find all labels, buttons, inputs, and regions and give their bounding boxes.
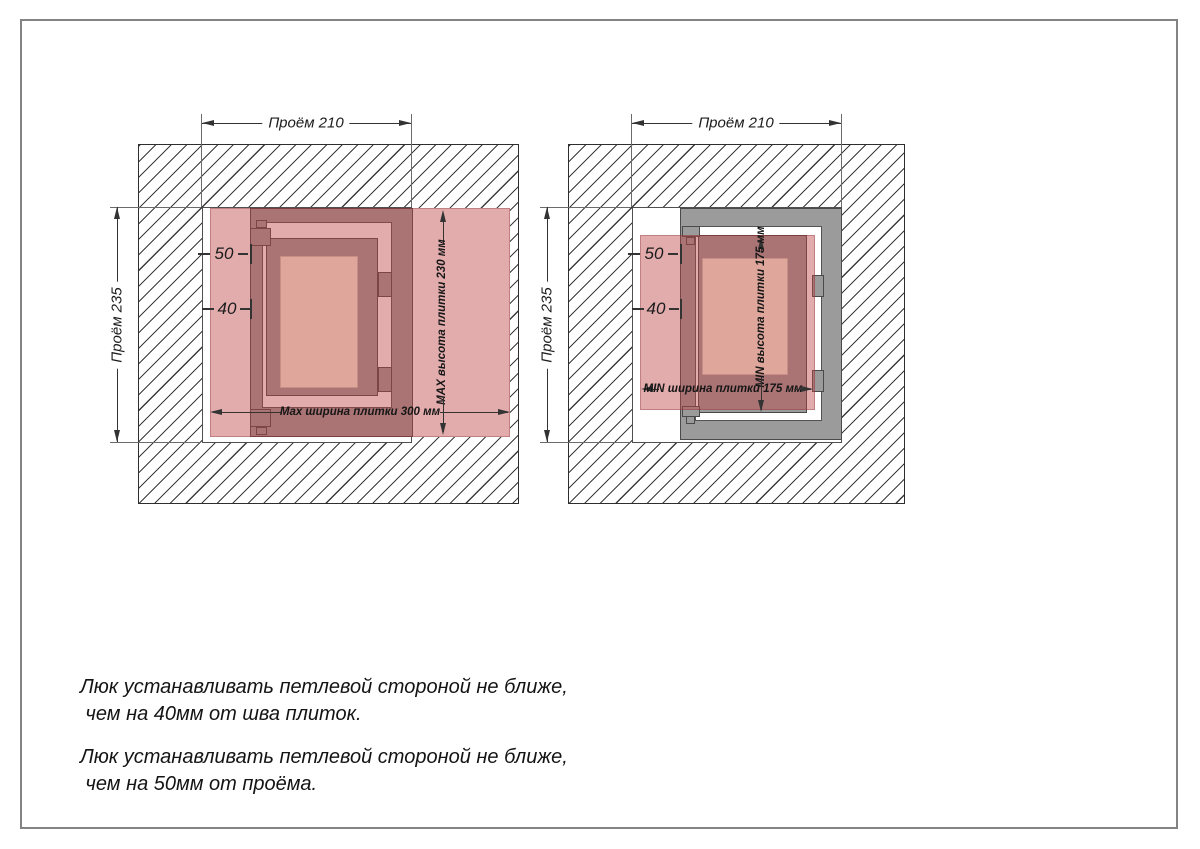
- dim-dash: [202, 308, 214, 310]
- right-tile-width-label: MIN ширина плитки 175 мм: [644, 383, 803, 395]
- right-opening-height-label: Проём 235: [539, 281, 556, 368]
- left-tile-width-line: [213, 412, 281, 413]
- left-opening-height-label: Проём 235: [109, 281, 126, 368]
- left-offset-40-label: 40: [218, 299, 237, 319]
- right-offset-50-label: 50: [645, 244, 664, 264]
- left-opening-width-label: Проём 210: [262, 115, 349, 132]
- dim-tick: [680, 244, 682, 264]
- right-opening-width-label: Проём 210: [692, 115, 779, 132]
- dim-dash: [198, 253, 210, 255]
- dim-arrowhead-down-icon: [758, 400, 764, 412]
- dim-arrowhead-down-icon: [114, 430, 120, 442]
- left-ext-line: [411, 114, 412, 207]
- dim-arrowhead-down-icon: [440, 423, 446, 435]
- dim-tick: [680, 299, 682, 319]
- right-ext-line: [540, 207, 631, 208]
- dim-arrowhead-left-icon: [202, 120, 214, 126]
- left-ext-line: [110, 207, 201, 208]
- drawing-canvas: Проём 210 Проём 235 50 40 Max ширина пли…: [0, 0, 1200, 849]
- right-ext-line: [841, 114, 842, 207]
- dim-dash: [238, 253, 248, 255]
- dim-arrowhead-right-icon: [829, 120, 841, 126]
- dim-arrowhead-up-icon: [114, 207, 120, 219]
- dim-arrowhead-right-icon: [399, 120, 411, 126]
- left-ext-line: [110, 442, 201, 443]
- dim-arrowhead-up-icon: [544, 207, 550, 219]
- left-tile-width-label: Max ширина плитки 300 мм: [280, 406, 440, 418]
- dim-dash: [669, 308, 679, 310]
- note-1-line-1: Люк устанавливать петлевой стороной не б…: [80, 674, 568, 701]
- right-hinge-bottom-pin-icon: [686, 416, 695, 424]
- dim-tick: [250, 244, 252, 264]
- right-ext-line: [540, 442, 631, 443]
- note-2-line-1: Люк устанавливать петлевой стороной не б…: [80, 744, 568, 771]
- dim-dash: [240, 308, 250, 310]
- dim-arrowhead-left-icon: [632, 120, 644, 126]
- dim-tick: [250, 299, 252, 319]
- left-tile-height-label: MAX высота плитки 230 мм: [436, 239, 448, 405]
- left-ext-line: [201, 114, 202, 207]
- dim-dash: [632, 308, 644, 310]
- left-tile-overlay: [210, 208, 510, 437]
- dim-dash: [668, 253, 678, 255]
- right-tile-height-label: MIN высота плитки 175 мм: [755, 226, 767, 387]
- right-offset-40-label: 40: [647, 299, 666, 319]
- dim-arrowhead-right-icon: [498, 409, 510, 415]
- right-ext-line: [631, 114, 632, 207]
- note-2-line-2: чем на 50мм от проёма.: [80, 771, 317, 798]
- dim-arrowhead-down-icon: [544, 430, 550, 442]
- left-offset-50-label: 50: [215, 244, 234, 264]
- note-1-line-2: чем на 40мм от шва плиток.: [80, 701, 362, 728]
- dim-arrowhead-right-icon: [801, 386, 813, 392]
- dim-dash: [628, 253, 640, 255]
